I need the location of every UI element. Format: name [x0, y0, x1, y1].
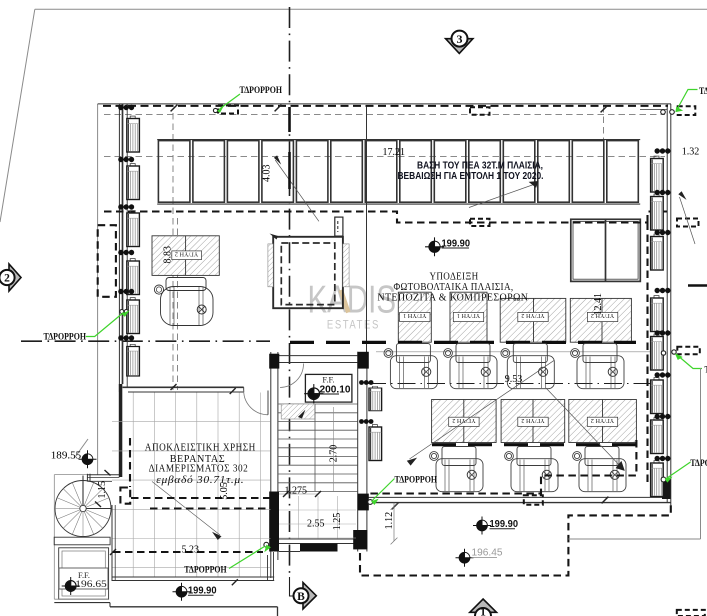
svg-text:ΥΓ/ΥΗ 2: ΥΓ/ΥΗ 2 — [521, 312, 544, 319]
svg-text:ΒΕΒΑΙΩΣΗ ΓΙΑ ΕΝΤΟΛΗ 1 ΤΟΥ 2020: ΒΕΒΑΙΩΣΗ ΓΙΑ ΕΝΤΟΛΗ 1 ΤΟΥ 2020. — [398, 171, 544, 182]
svg-text:8.83: 8.83 — [163, 246, 174, 264]
svg-text:2: 2 — [4, 273, 10, 285]
svg-text:ΝΤΕΠΟΖΙΤΑ & ΚΟΜΠΡΕΣΟΡΩΝ: ΝΤΕΠΟΖΙΤΑ & ΚΟΜΠΡΕΣΟΡΩΝ — [377, 293, 528, 304]
svg-text:1.15: 1.15 — [97, 481, 108, 499]
svg-text:ΤΔΡΟΡΡΟΗ: ΤΔΡΟΡΡΟΗ — [44, 332, 87, 343]
svg-text:1.275: 1.275 — [285, 486, 308, 497]
svg-text:ΥΓ/ΥΗ 2: ΥΓ/ΥΗ 2 — [175, 250, 198, 257]
svg-text:4.03: 4.03 — [262, 165, 273, 183]
svg-text:ΔΙΑΜΕΡΙΣΜΑΤΟΣ 302: ΔΙΑΜΕΡΙΣΜΑΤΟΣ 302 — [149, 462, 249, 474]
svg-text:196.65: 196.65 — [75, 580, 107, 590]
svg-text:εμβαδό 30.71τ.μ.: εμβαδό 30.71τ.μ. — [156, 474, 244, 486]
svg-text:ΥΓ/ΥΗ 1: ΥΓ/ΥΗ 1 — [403, 312, 426, 319]
svg-text:ΥΠΟΔΕΙΞΗ: ΥΠΟΔΕΙΞΗ — [430, 272, 479, 283]
svg-text:ΥΓ/ΥΗ 1: ΥΓ/ΥΗ 1 — [457, 312, 480, 319]
svg-text:1: 1 — [480, 607, 486, 616]
svg-text:2.55: 2.55 — [307, 519, 325, 530]
svg-text:ΤΔΡΟΡΡΟΗ: ΤΔΡΟΡΡΟΗ — [184, 565, 227, 576]
svg-text:ΥΓ/ΥΗ 2: ΥΓ/ΥΗ 2 — [591, 417, 614, 424]
svg-text:9.53: 9.53 — [505, 374, 523, 385]
svg-text:B: B — [297, 591, 305, 603]
svg-text:189.55: 189.55 — [51, 451, 81, 462]
svg-text:1.32: 1.32 — [682, 146, 700, 157]
svg-text:ΦΩΤΟΒΟΛΤΑΙΚΑ ΠΛΑΙΣΙΑ,: ΦΩΤΟΒΟΛΤΑΙΚΑ ΠΛΑΙΣΙΑ, — [394, 282, 514, 293]
svg-text:ΤΔΡΟΡΡΟΗ: ΤΔΡΟΡΡΟΗ — [395, 474, 438, 485]
svg-text:ΥΓ/ΥΗ 2: ΥΓ/ΥΗ 2 — [452, 417, 475, 424]
svg-text:ΤΔΡΟΡΡΟΗ: ΤΔΡΟΡΡΟΗ — [690, 458, 707, 469]
svg-text:ΤΔΡΟΡΡΟΗ: ΤΔΡΟΡΡΟΗ — [240, 85, 283, 96]
svg-text:12.41: 12.41 — [593, 293, 604, 316]
svg-text:5.23: 5.23 — [182, 545, 200, 556]
svg-text:2.70: 2.70 — [329, 445, 340, 463]
svg-text:ΤΔΡΟΡΡΟΗ: ΤΔΡΟΡΡΟΗ — [699, 86, 707, 97]
svg-text:ΑΠΟΚΛΕΙΣΤΙΚΗ ΧΡΗΣΗ: ΑΠΟΚΛΕΙΣΤΙΚΗ ΧΡΗΣΗ — [145, 441, 256, 453]
svg-text:17.21: 17.21 — [383, 147, 406, 158]
svg-text:1.12: 1.12 — [384, 512, 395, 530]
svg-text:3: 3 — [457, 32, 463, 46]
svg-text:ΥΓ/ΥΗ 2: ΥΓ/ΥΗ 2 — [521, 417, 544, 424]
svg-text:ESTATES: ESTATES — [327, 317, 380, 331]
svg-text:1.25: 1.25 — [332, 513, 343, 531]
